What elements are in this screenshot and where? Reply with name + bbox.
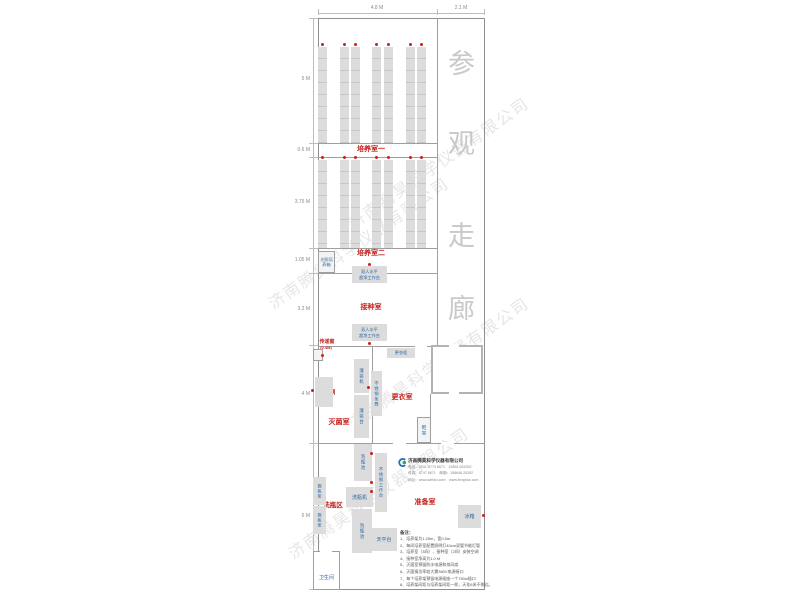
culture-shelf: [406, 47, 415, 143]
clean-bench-2: 双人水平 超净工作台: [352, 324, 387, 341]
toilet-box: 卫生间: [313, 551, 340, 590]
dim-tick: [309, 273, 318, 274]
bottle-shelf-1-box: 搁瓶架: [313, 477, 326, 505]
dim-label-06m: 0.6 M: [282, 147, 310, 153]
bottle-shelf-2-box: 搁瓶架: [313, 506, 326, 534]
power-point-marker: [375, 156, 378, 159]
dim-label-48m: 4.8 M: [345, 5, 409, 11]
corridor-title-char: 参: [448, 42, 475, 81]
corridor-wall: [437, 18, 438, 345]
power-point-marker: [409, 43, 412, 46]
steel-bench-box: 不锈钢条凳: [371, 371, 382, 416]
door-opening: [415, 345, 427, 348]
power-point-marker: [420, 156, 423, 159]
company-info-block: 济南腾昊科学仪器有限公司 电话：0531-8779 6671 15864 625…: [408, 458, 494, 483]
door-opening: [320, 549, 332, 552]
autoclave-box: [315, 377, 333, 407]
power-point-marker: [354, 156, 357, 159]
soak-pool-2-box: 泡瓶池: [352, 509, 372, 553]
power-point-marker: [368, 263, 371, 266]
power-point-marker: [321, 156, 324, 159]
culture-shelf: [372, 47, 381, 143]
clean-bench-label: 超净工作台: [359, 333, 380, 338]
door-opening: [393, 442, 406, 445]
dim-tick: [309, 143, 318, 144]
notes-title: 备注：: [400, 529, 492, 536]
corridor-title-char: 观: [448, 122, 475, 161]
culture-shelf: [318, 47, 327, 143]
note-item: 5、灭菌室预留防水电源和排风扇: [400, 562, 492, 569]
power-point-marker: [321, 43, 324, 46]
room-label-culture1: 培养室一: [345, 144, 397, 154]
light-incubator-box: 光照培养箱: [318, 251, 335, 273]
dim-tick: [309, 248, 318, 249]
dim-tick: [318, 9, 319, 15]
power-point-marker: [420, 43, 423, 46]
shoe-rack-box: 鞋架: [417, 417, 431, 443]
dim-tick: [309, 443, 318, 444]
culture-shelf: [318, 160, 327, 248]
culture-shelf: [372, 160, 381, 248]
filling-table-box: 灌装台: [354, 395, 369, 438]
dim-tick: [309, 157, 318, 158]
buffer-room-box: [431, 345, 483, 394]
corridor-title-char: 走: [448, 214, 475, 253]
culture-shelf: [417, 160, 426, 248]
power-point-marker: [343, 156, 346, 159]
corridor-title-char: 廊: [448, 287, 475, 326]
power-point-marker: [367, 386, 370, 389]
power-point-marker: [370, 490, 373, 493]
culture-shelf: [417, 47, 426, 143]
room-label-passbox: 传递窗: [315, 338, 339, 345]
power-point-marker: [387, 43, 390, 46]
door-opening: [441, 442, 454, 445]
room-label-preparation: 准备室: [411, 497, 439, 507]
locker-box: 更衣柜: [387, 348, 415, 358]
culture-shelf: [384, 160, 393, 248]
dim-label-375m: 3.75 M: [282, 199, 310, 205]
toilet-label: 卫生间: [319, 574, 334, 581]
room-label-sterilization: 灭菌室: [326, 417, 352, 427]
dim-label-105m: 1.05 M: [282, 257, 310, 263]
company-logo-icon: [398, 458, 407, 467]
power-point-marker: [354, 43, 357, 46]
light-incubator-label: 光照培养箱: [319, 257, 334, 267]
culture-shelf: [384, 47, 393, 143]
clean-bench-1: 双人水平 超净工作台: [352, 266, 387, 283]
fridge-box: 冰箱: [458, 505, 481, 528]
soak-pool-1-box: 泡瓶池: [354, 444, 372, 481]
room-label-changing: 更衣室: [389, 392, 415, 402]
power-point-marker: [321, 354, 324, 357]
dim-line-top: [318, 13, 485, 14]
power-point-marker: [482, 514, 485, 517]
note-item: 3、培养室（3间）、接种室（2间）安装空调: [400, 549, 492, 556]
dim-label-4m: 4 M: [282, 391, 310, 397]
balance-table-box: 天平台: [371, 528, 397, 551]
culture-shelf: [340, 160, 349, 248]
room-label-inoculation: 接种室: [348, 302, 394, 312]
culture-shelf: [351, 160, 360, 248]
bottle-washer-box: 洗瓶机: [346, 487, 373, 507]
door-opening: [449, 391, 459, 395]
culture-shelf: [340, 47, 349, 143]
steel-worktable-box: 不锈钢工作台: [375, 453, 387, 512]
note-item: 8、培养架间距与培养架间距一样，天花6米不倒边。: [400, 582, 492, 589]
power-point-marker: [343, 43, 346, 46]
power-point-marker: [311, 389, 314, 392]
culture-shelf: [406, 160, 415, 248]
dim-label-32m: 3.2 M: [282, 306, 310, 312]
power-point-marker: [370, 452, 373, 455]
power-point-marker: [409, 156, 412, 159]
floor-plan-canvas: 济南腾昊科学仪器有限公司 济南腾昊科学仪器有限公司 济南腾昊科学仪器有限公司 济…: [0, 0, 800, 600]
clean-bench-label: 超净工作台: [359, 275, 380, 280]
culture-shelf: [351, 47, 360, 143]
dim-label-21m: 2.1 M: [437, 5, 485, 11]
power-point-marker: [368, 342, 371, 345]
dim-label-5m: 5 M: [282, 76, 310, 82]
power-point-marker: [370, 481, 373, 484]
notes-block: 备注： 1、培养架为1.25m，宽0.5m 2、每间培养室配置照明灯40cm双管…: [400, 529, 492, 589]
door-opening: [449, 344, 459, 348]
note-item: 6、灭菌锅功率较大需380V电源接口: [400, 569, 492, 576]
note-item: 1、培养架为1.25m，宽0.5m: [400, 536, 492, 543]
company-website: 网址：www.sdthkx.com www.tenghao.com: [408, 477, 494, 483]
dim-tick: [309, 18, 318, 19]
power-point-marker: [375, 43, 378, 46]
room-label-culture2: 培养室二: [345, 248, 397, 258]
power-point-marker: [387, 156, 390, 159]
dim-label-6m: 6 M: [282, 513, 310, 519]
